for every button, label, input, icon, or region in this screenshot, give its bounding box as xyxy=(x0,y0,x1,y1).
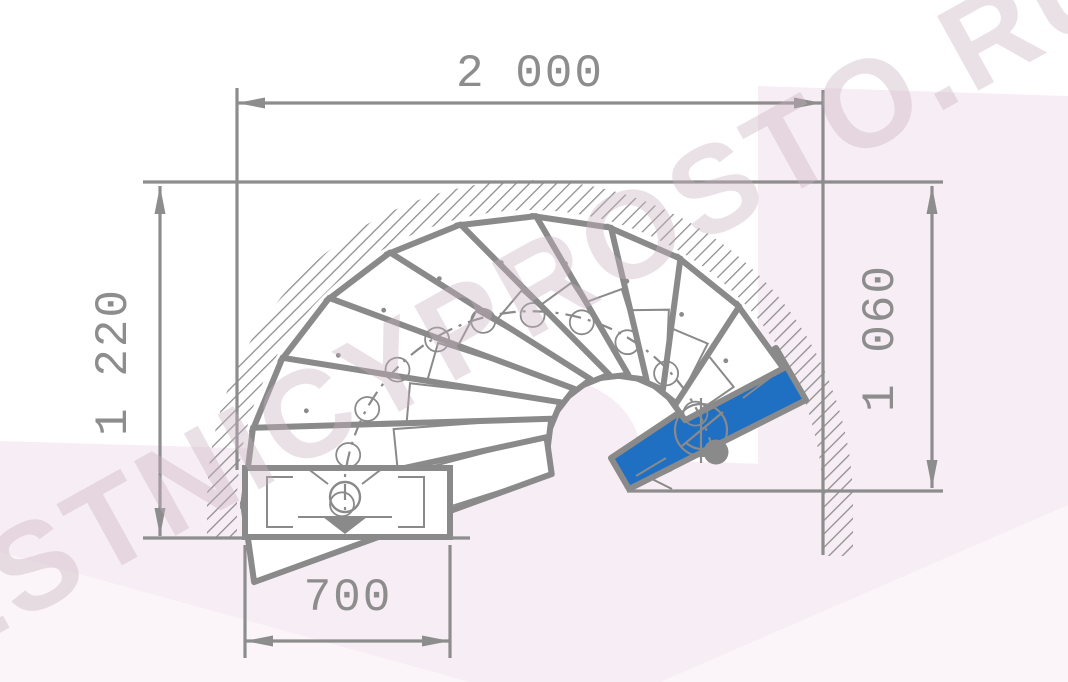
staircase-plan-drawing: 2 000 1 220 1 060 700 LESTNICYPROSTO.RU xyxy=(0,0,1068,682)
dimension-label-left-height: 1 220 xyxy=(88,288,140,436)
step-dot xyxy=(723,358,728,363)
arrowhead xyxy=(155,186,166,214)
column-post-dot xyxy=(704,440,729,465)
step-dot xyxy=(679,312,684,317)
dimension-label-bottom-width: 700 xyxy=(304,572,393,624)
staircase-plan-canvas: 2 000 1 220 1 060 700 LESTNICYPROSTO.RU xyxy=(0,0,1068,682)
arrowhead xyxy=(237,98,265,109)
dimension-label-right-height: 1 060 xyxy=(855,264,907,412)
dimension-label-top-width: 2 000 xyxy=(456,48,604,100)
